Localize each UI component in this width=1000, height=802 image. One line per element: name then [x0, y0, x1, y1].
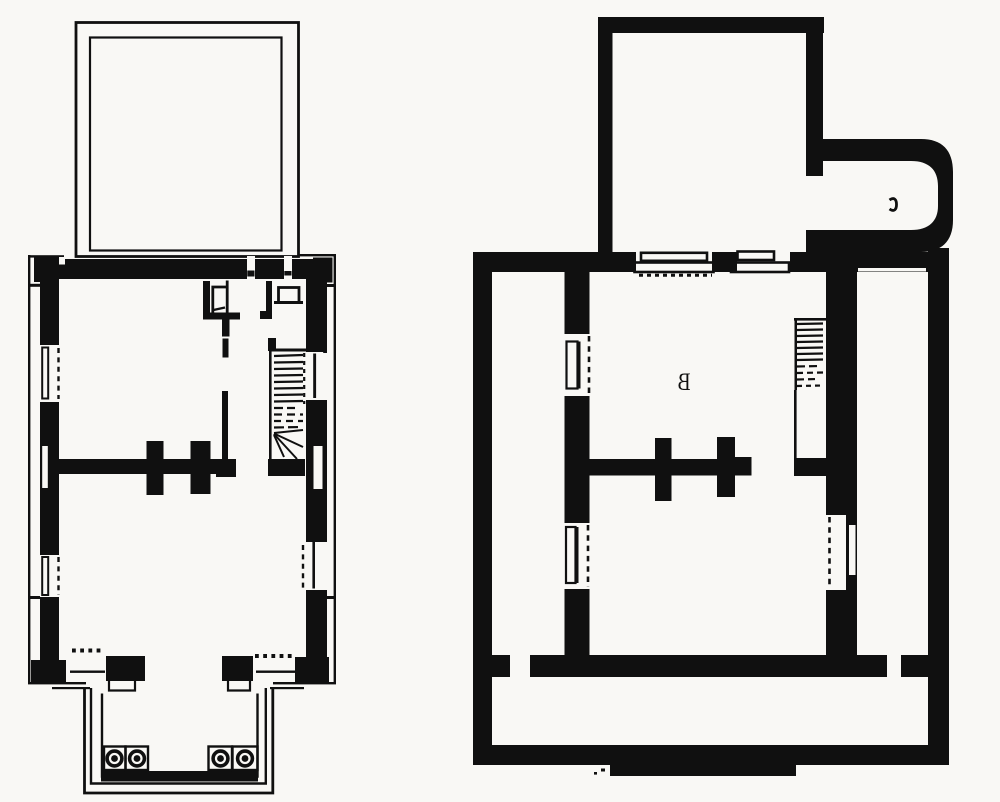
svg-text:B: B: [677, 368, 690, 396]
